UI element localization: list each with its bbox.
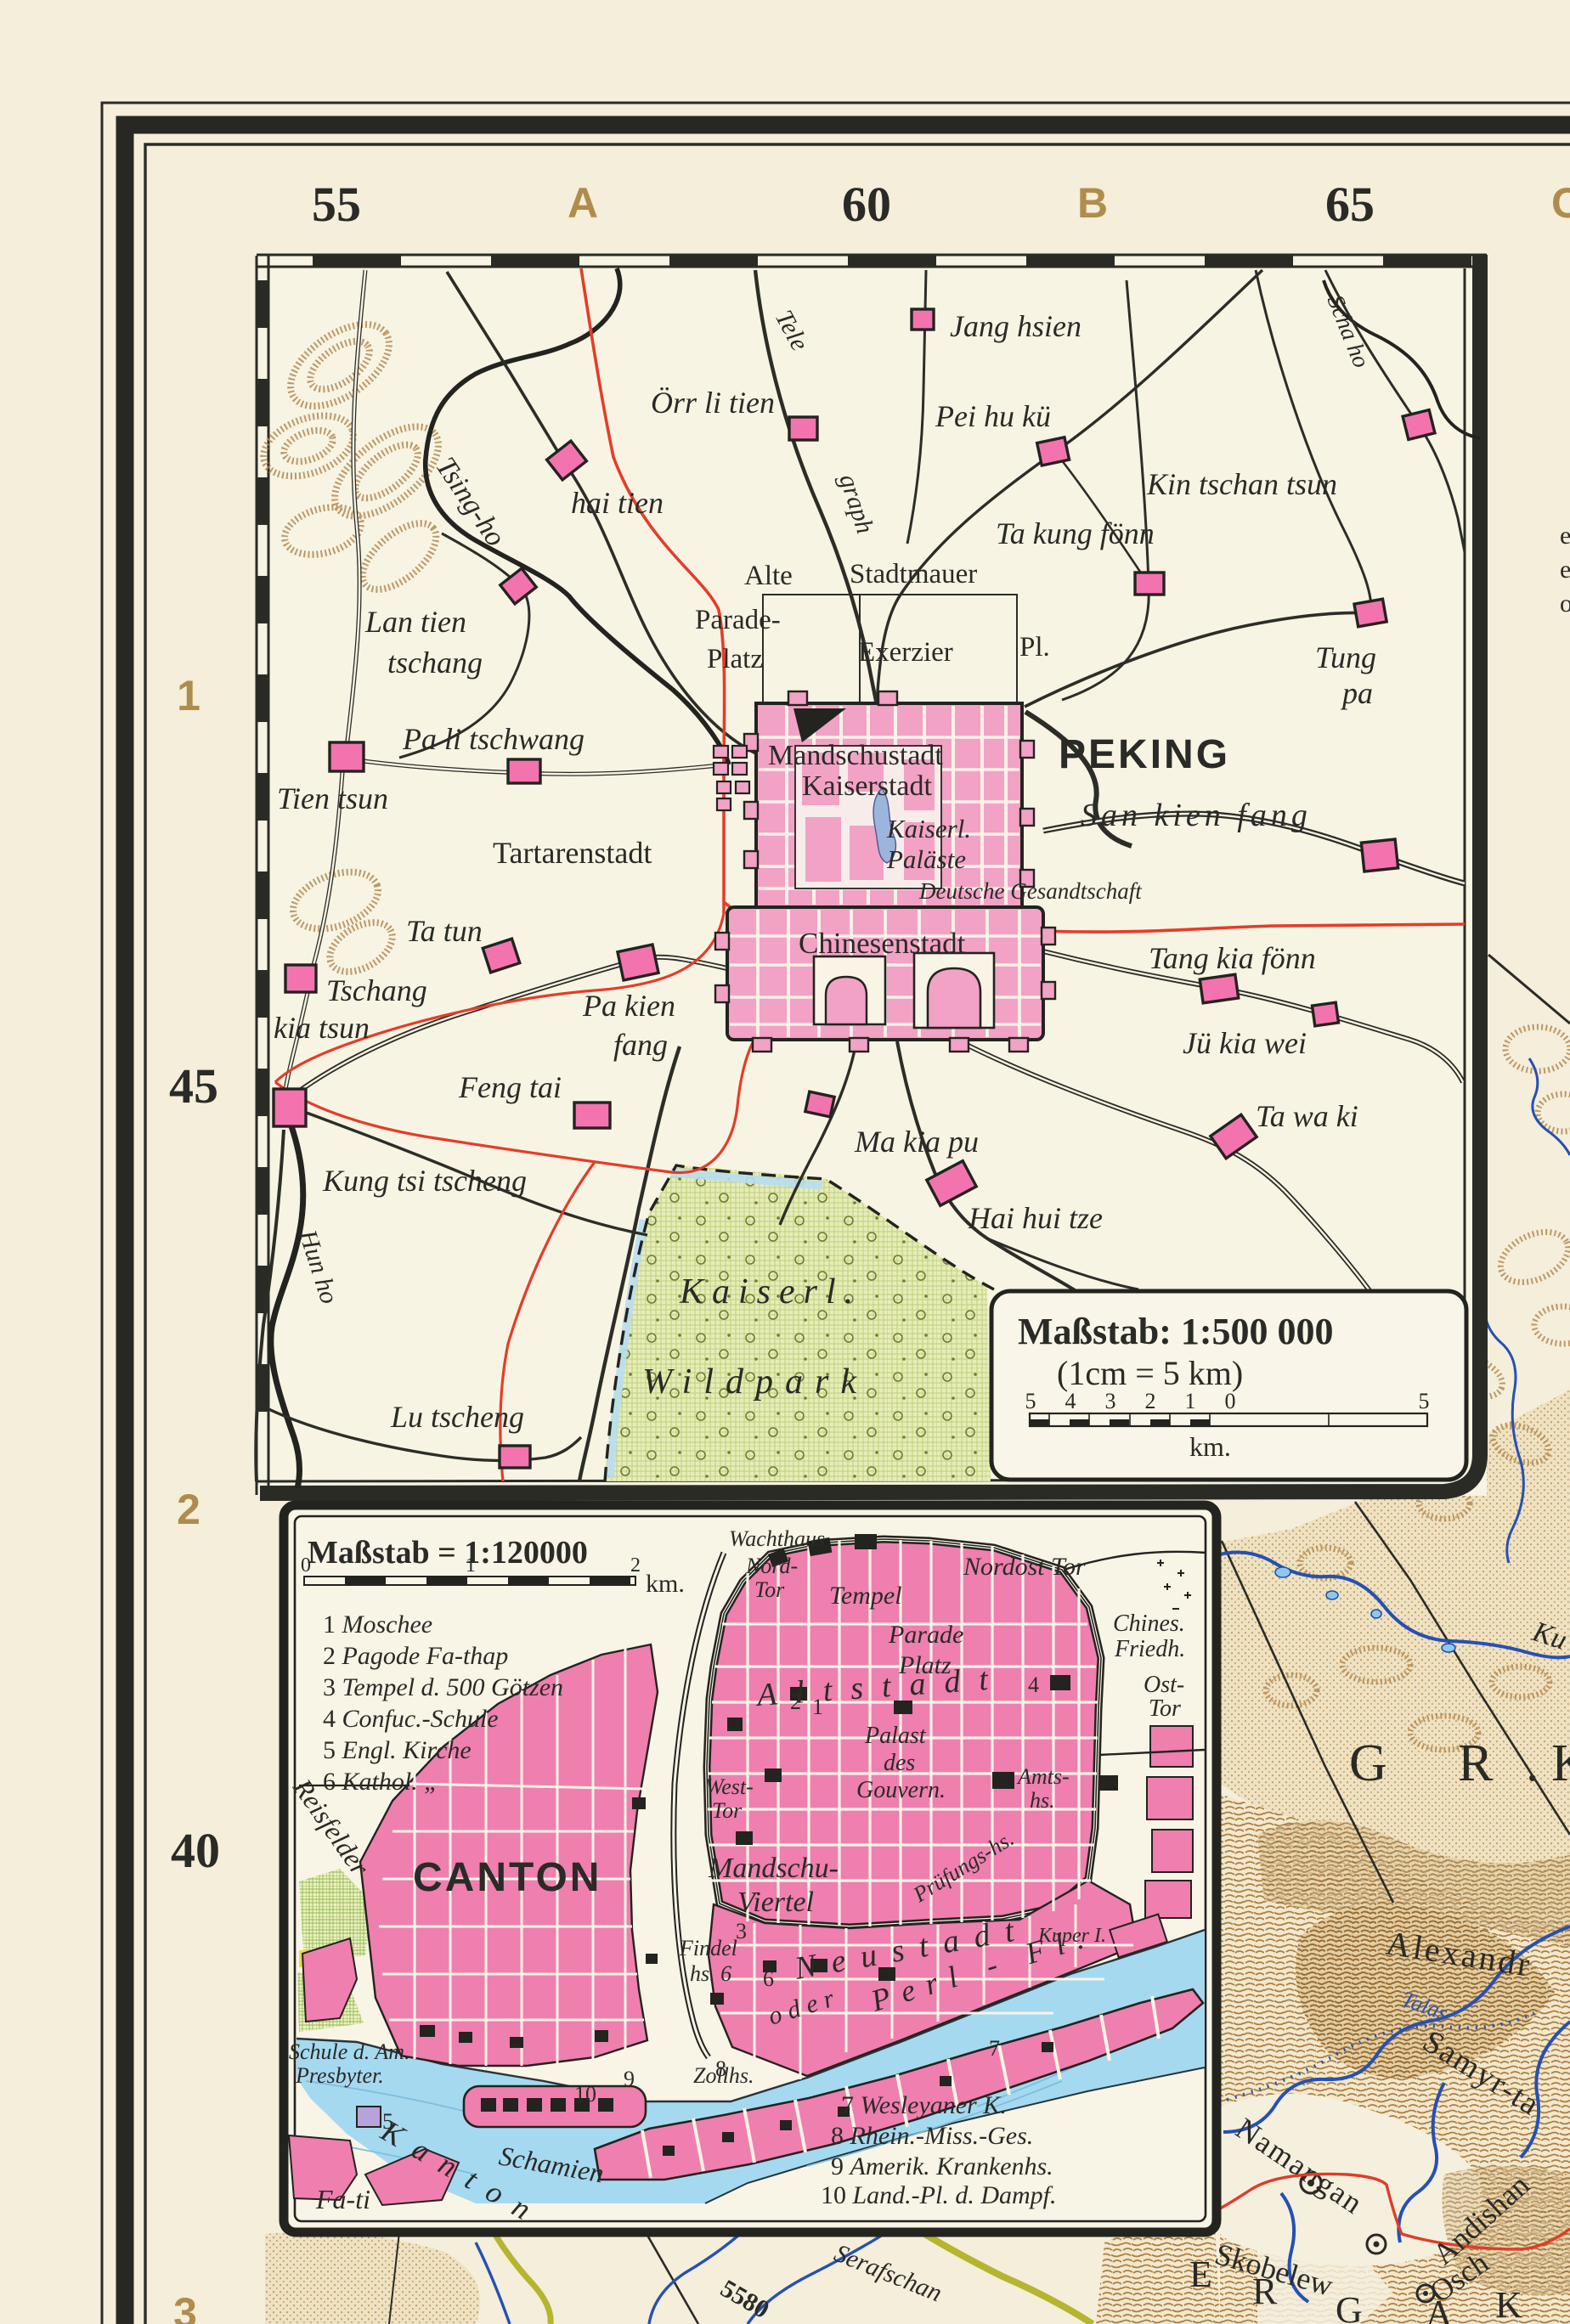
svg-text:7 Wesleyaner K.: 7 Wesleyaner K. [841, 2091, 1007, 2119]
svg-text:Tor: Tor [1149, 1695, 1181, 1722]
svg-text:tschang: tschang [387, 646, 483, 680]
svg-text:Viertel: Viertel [737, 1887, 814, 1918]
svg-text:0: 0 [1225, 1389, 1236, 1413]
svg-text:Lan tien: Lan tien [364, 605, 466, 639]
svg-text:Fa-ti: Fa-ti [315, 2184, 370, 2214]
svg-text:Pei hu kü: Pei hu kü [935, 399, 1051, 433]
svg-text:Nordost Tor: Nordost Tor [963, 1553, 1086, 1581]
svg-text:Maßstab = 1:120000: Maßstab = 1:120000 [308, 1535, 588, 1571]
svg-text:hai tien: hai tien [571, 486, 664, 520]
svg-text:Kung tsi tscheng: Kung tsi tscheng [322, 1164, 527, 1198]
svg-text:5: 5 [1025, 1389, 1036, 1413]
svg-text:0: 0 [301, 1554, 311, 1577]
svg-text:1: 1 [177, 672, 200, 719]
svg-text:Kaiserl.: Kaiserl. [679, 1272, 861, 1311]
svg-text:hs.: hs. [1030, 1788, 1055, 1813]
svg-text:Tor: Tor [754, 1577, 785, 1602]
svg-text:4 Confuc.-Schule: 4 Confuc.-Schule [323, 1705, 499, 1733]
svg-text:8: 8 [715, 2056, 726, 2081]
svg-text:Friedh.: Friedh. [1114, 1636, 1185, 1662]
svg-text:Parade: Parade [888, 1621, 963, 1649]
svg-text:Chines.: Chines. [1113, 1610, 1185, 1637]
svg-text:Jang hsien: Jang hsien [950, 309, 1081, 343]
svg-text:(1cm = 5 km): (1cm = 5 km) [1057, 1354, 1243, 1392]
svg-text:6: 6 [763, 1966, 774, 1991]
svg-text:des: des [884, 1750, 915, 1776]
svg-text:Presbyter.: Presbyter. [295, 2063, 384, 2088]
svg-text:5: 5 [1419, 1389, 1430, 1413]
svg-text:Hai hui tze: Hai hui tze [968, 1201, 1103, 1235]
svg-text:Tartarenstadt: Tartarenstadt [493, 836, 652, 870]
svg-text:Tang kia fönn: Tang kia fönn [1149, 941, 1316, 975]
svg-text:2: 2 [630, 1554, 641, 1577]
svg-text:K: K [1495, 2284, 1522, 2324]
svg-text:G: G [1349, 1735, 1387, 1792]
svg-text:Ost-: Ost- [1144, 1672, 1184, 1698]
svg-text:3 Tempel d. 500 Götzen: 3 Tempel d. 500 Götzen [323, 1673, 563, 1701]
svg-text:2 Pagode Fa-thap: 2 Pagode Fa-thap [323, 1642, 508, 1670]
svg-text:3: 3 [173, 2289, 197, 2324]
svg-text:Tien tsun: Tien tsun [277, 781, 388, 815]
svg-text:pa: pa [1340, 676, 1373, 710]
svg-text:Alte: Alte [744, 561, 793, 591]
svg-text:Paläste: Paläste [886, 844, 966, 874]
svg-text:Ta wa ki: Ta wa ki [1256, 1099, 1358, 1133]
svg-text:Lu tscheng: Lu tscheng [390, 1400, 524, 1434]
svg-text:K: K [1551, 1735, 1570, 1792]
svg-text:e: e [1560, 556, 1570, 584]
svg-text:Ta tun: Ta tun [406, 914, 483, 948]
svg-text:PEKING: PEKING [1059, 732, 1230, 777]
svg-text:7: 7 [989, 2036, 1000, 2061]
svg-text:45: 45 [169, 1058, 218, 1114]
svg-text:Chinesenstadt: Chinesenstadt [799, 927, 966, 960]
svg-text:6 Kathol. „: 6 Kathol. „ [323, 1768, 438, 1796]
svg-text:10 Land.-Pl. d. Dampf.: 10 Land.-Pl. d. Dampf. [821, 2181, 1057, 2209]
svg-text:9: 9 [624, 2067, 635, 2091]
svg-text:2: 2 [790, 1689, 801, 1714]
svg-text:1: 1 [812, 1695, 823, 1719]
svg-text:Pa kien: Pa kien [582, 989, 675, 1023]
svg-text:Ma kia pu: Ma kia pu [854, 1125, 979, 1159]
svg-text:3: 3 [736, 1919, 747, 1943]
svg-text:Tempel: Tempel [829, 1582, 902, 1610]
svg-text:2: 2 [1145, 1389, 1156, 1413]
svg-text:E: E [1189, 2253, 1212, 2295]
svg-text:km.: km. [646, 1570, 685, 1598]
svg-text:9 Amerik. Krankenhs.: 9 Amerik. Krankenhs. [831, 2152, 1053, 2180]
svg-text:Palast: Palast [864, 1723, 927, 1749]
svg-text:Findel: Findel [679, 1936, 737, 1960]
svg-text:Feng tai: Feng tai [458, 1070, 562, 1104]
svg-text:60: 60 [842, 177, 891, 232]
svg-text:Nord-: Nord- [745, 1554, 798, 1578]
svg-text:Örr li tien: Örr li tien [651, 386, 775, 420]
svg-text:5 Engl. Kirche: 5 Engl. Kirche [323, 1736, 472, 1764]
svg-text:Tung: Tung [1315, 640, 1376, 674]
svg-text:B: B [1077, 179, 1108, 227]
svg-text:fang: fang [613, 1028, 668, 1062]
svg-text:Kin tschan tsun: Kin tschan tsun [1146, 467, 1337, 501]
svg-text:Pl.: Pl. [1019, 632, 1050, 663]
svg-text:CANTON: CANTON [413, 1855, 601, 1900]
svg-text:4: 4 [1065, 1389, 1076, 1413]
svg-text:1 Moschee: 1 Moschee [323, 1610, 432, 1639]
svg-text:4: 4 [1028, 1672, 1039, 1697]
svg-text:G: G [1336, 2289, 1363, 2324]
svg-text:1: 1 [466, 1554, 476, 1577]
svg-text:Platz: Platz [707, 644, 763, 674]
svg-text:Tschang: Tschang [326, 973, 427, 1007]
svg-text:5: 5 [382, 2109, 393, 2134]
svg-text:Maßstab: 1:500 000: Maßstab: 1:500 000 [1018, 1311, 1334, 1352]
svg-text:R: R [1252, 2270, 1278, 2312]
svg-text:Jü kia wei: Jü kia wei [1183, 1026, 1307, 1060]
svg-text:Mandschu-: Mandschu- [708, 1853, 839, 1884]
svg-text:e: e [1560, 522, 1570, 550]
svg-text:Schule d. Am.: Schule d. Am. [289, 2039, 410, 2064]
svg-text:65: 65 [1325, 177, 1375, 232]
svg-text:2: 2 [177, 1486, 200, 1533]
svg-text:R: R [1458, 1735, 1494, 1792]
svg-text:40: 40 [171, 1823, 220, 1878]
svg-text:C: C [1551, 179, 1570, 227]
svg-text:Gouvern.: Gouvern. [856, 1777, 946, 1803]
svg-text:Parade-: Parade- [695, 605, 781, 635]
svg-text:8 Rhein.-Miss.-Ges.: 8 Rhein.-Miss.-Ges. [831, 2122, 1033, 2150]
svg-text:Amts-: Amts- [1016, 1764, 1070, 1789]
svg-text:West-: West- [705, 1774, 754, 1799]
svg-text:55: 55 [312, 177, 361, 232]
svg-text:kia tsun: kia tsun [274, 1011, 370, 1045]
svg-text:Pa li tschwang: Pa li tschwang [402, 722, 585, 756]
svg-text:Deutsche Gesandtschaft: Deutsche Gesandtschaft [918, 878, 1143, 904]
svg-text:hs. 6: hs. 6 [690, 1961, 731, 1986]
svg-text:10: 10 [574, 2082, 596, 2107]
svg-text:A: A [568, 179, 598, 227]
svg-text:Kaiserl.: Kaiserl. [886, 814, 971, 843]
svg-text:km.: km. [1189, 1431, 1231, 1462]
svg-text:3: 3 [1105, 1389, 1116, 1413]
svg-text:Wildpark: Wildpark [642, 1362, 868, 1402]
svg-text:.: . [1526, 1735, 1539, 1792]
svg-text:Wachthaus: Wachthaus [729, 1526, 825, 1551]
svg-text:Mandschustadt: Mandschustadt [768, 740, 943, 771]
svg-text:Exerzier: Exerzier [858, 637, 953, 668]
svg-text:A: A [1426, 2293, 1453, 2324]
svg-text:Stadtmauer: Stadtmauer [850, 559, 977, 589]
svg-text:Kaiserstadt: Kaiserstadt [802, 770, 933, 802]
svg-text:1: 1 [1185, 1389, 1196, 1413]
svg-text:Tor: Tor [712, 1798, 743, 1823]
svg-text:San kien fang: San kien fang [1081, 798, 1312, 833]
svg-text:Ta kung fönn: Ta kung fönn [996, 516, 1155, 550]
svg-text:o: o [1560, 589, 1570, 618]
